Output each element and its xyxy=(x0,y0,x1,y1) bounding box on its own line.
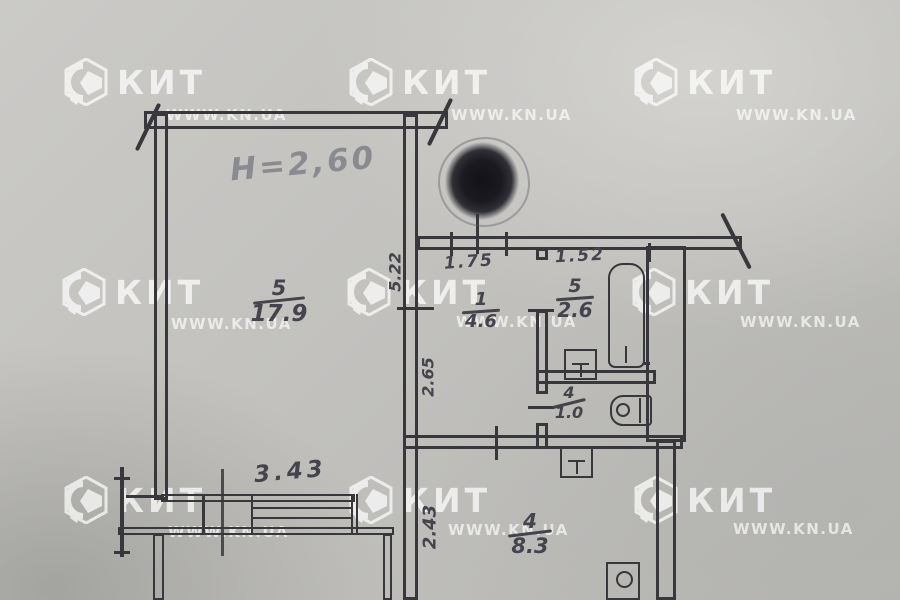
room-number: 4 xyxy=(523,511,537,532)
dim-entry-width: 1.75 xyxy=(443,250,494,273)
room-label-bathroom: 5 2.6 xyxy=(552,277,598,321)
bathtub-drain xyxy=(625,346,627,363)
tick-bath-width xyxy=(648,243,651,262)
washbasin-mark xyxy=(580,363,582,377)
toilet xyxy=(610,395,652,426)
watermark-site: WWW.KN.UA xyxy=(733,520,854,538)
extension-line-window xyxy=(221,469,224,556)
window-pane-line xyxy=(253,507,351,509)
room-number: 4 xyxy=(563,385,574,402)
watermark-brand: КИТ xyxy=(117,63,206,102)
bathtub-wall-connector xyxy=(644,362,650,365)
wall-segment-line xyxy=(202,496,205,534)
room-area: 2.6 xyxy=(557,300,592,321)
watermark: КИТ xyxy=(64,58,206,106)
watermark-site: WWW.KN.UA xyxy=(451,106,572,124)
wall-kitchen-right xyxy=(656,440,676,600)
kitchen-sink xyxy=(560,446,593,478)
dim-living-depth: 5.22 xyxy=(386,252,405,291)
watermark-site: WWW.KN.UA xyxy=(736,106,857,124)
window-jamb xyxy=(356,494,358,535)
wall-inner-face-extension xyxy=(126,495,164,498)
dim-hallway-depth: 2.65 xyxy=(419,357,438,396)
wall-outer-right-upper xyxy=(646,246,686,442)
room-area: 8.3 xyxy=(511,535,548,557)
scanned-floor-plan: КИТ КИТ КИТ КИТ КИТ КИТ КИТ КИТ КИТ WWW.… xyxy=(0,0,900,600)
window xyxy=(251,494,353,535)
wall-balcony-left xyxy=(153,534,164,600)
dim-window-width: 3.43 xyxy=(253,456,328,488)
wall-bath-left-stub xyxy=(536,248,548,260)
kit-logo-icon xyxy=(62,268,106,316)
watermark-brand: КИТ xyxy=(687,481,776,520)
extension-line-left xyxy=(120,467,124,557)
watermark: КИТ xyxy=(634,58,776,106)
kit-logo-icon xyxy=(64,476,108,524)
watermark-site: WWW.KN.UA xyxy=(740,313,861,331)
tick-entry-right xyxy=(505,232,508,256)
kit-logo-icon xyxy=(64,58,108,106)
stove xyxy=(606,562,640,600)
kit-logo-icon xyxy=(634,58,678,106)
room-number: 1 xyxy=(475,291,488,310)
toilet-bowl xyxy=(616,403,630,417)
watermark: КИТ xyxy=(349,58,491,106)
watermark-brand: КИТ xyxy=(687,63,776,102)
room-number: 5 xyxy=(568,277,581,297)
washbasin xyxy=(564,349,597,380)
tick-bath-door xyxy=(528,309,554,312)
kitchen-sink-mark xyxy=(576,460,578,474)
dim-bathroom-width: 1.52 xyxy=(555,245,606,268)
dim-kitchen-depth: 2.43 xyxy=(420,505,441,549)
watermark-brand: КИТ xyxy=(685,273,774,312)
room-label-kitchen: 4 8.3 xyxy=(504,511,556,557)
wall-kitchen-top xyxy=(403,435,683,449)
room-area: 4.6 xyxy=(465,313,497,332)
wall-living-left xyxy=(154,113,168,500)
stove-burner xyxy=(616,571,633,588)
room-label-hallway: 1 4.6 xyxy=(458,291,504,332)
bathtub xyxy=(608,263,645,368)
window-pane-line xyxy=(253,517,351,519)
extension-tick xyxy=(114,551,130,554)
wall-living-right-divider xyxy=(403,114,418,600)
extension-tick xyxy=(114,477,130,480)
room-label-wc: 4 1.0 xyxy=(548,385,590,422)
tick-kitchen-wall xyxy=(495,426,498,460)
wall-balcony-right xyxy=(383,534,392,600)
kit-logo-icon xyxy=(349,58,393,106)
ceiling-height-note: H=2,60 xyxy=(229,140,378,189)
tick-living-wall xyxy=(397,307,434,310)
room-label-living: 5 17.9 xyxy=(248,277,310,326)
kit-logo-icon xyxy=(347,268,391,316)
watermark-brand: КИТ xyxy=(402,63,491,102)
room-area: 17.9 xyxy=(251,302,308,326)
room-number: 5 xyxy=(272,277,287,299)
watermark: КИТ xyxy=(62,268,204,316)
toilet-tank-divider xyxy=(639,398,641,423)
